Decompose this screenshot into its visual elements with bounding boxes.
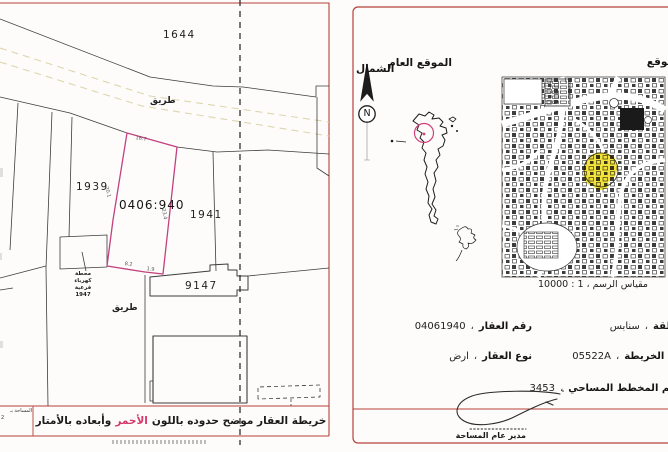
parcel-label-1644: 1644 [163, 29, 196, 41]
parcel-label-9147: 9147 [185, 280, 218, 292]
field-property-type: نوع العقار،ارض [449, 351, 532, 362]
site-map-label: الموقع [647, 56, 668, 68]
field-property-number: رقم العقار،04061940 [415, 321, 532, 332]
scan-smudge-text [112, 440, 208, 444]
caption-highlight-word: الأحمر [115, 415, 148, 427]
field-label: رقم المخطط المساحي [568, 383, 668, 394]
field-value: 04061940 [415, 321, 466, 332]
field-separator: ، [560, 383, 563, 394]
map-caption: خريطة العقار موضح حدوده باللون الأحمر وأ… [33, 406, 329, 436]
field-value: ارض [449, 351, 469, 362]
caption-pre: خريطة العقار موضح حدوده باللون [152, 415, 326, 427]
field-label: رقم الخريطة [624, 351, 668, 362]
field-separator: ، [471, 321, 474, 332]
field-separator: ، [645, 321, 648, 332]
subject-plot-number: 0406:940 [119, 198, 185, 212]
road-label-top: طريق [150, 96, 176, 106]
scanned-survey-certificate: 1644 طريق 1939 0406:940 1941 9147 طريق م… [0, 0, 668, 452]
street-map [502, 77, 665, 277]
field-label: رقم العقار [479, 321, 532, 332]
area-box: المساحة بـ 2 [1, 408, 32, 434]
field-survey-plan-number: رقم المخطط المساحي،3453 [530, 383, 668, 394]
north-label: الشمال [356, 63, 394, 75]
north-letter: N [361, 108, 373, 119]
scan-marks [0, 168, 3, 348]
area-box-label: المساحة بـ [1, 408, 32, 415]
road-label-bottom: طريق [112, 303, 138, 313]
signature-title: مدير عام المساحة [466, 431, 526, 440]
dimension-bottom-right: 1.9 [146, 266, 155, 273]
field-value: 05522A [572, 351, 611, 362]
field-value: 3453 [530, 383, 555, 394]
field-label: المنطقة [653, 321, 668, 332]
location-circle [415, 124, 434, 143]
field-district: المنطقة،سنابس [610, 321, 668, 332]
field-map-number: رقم الخريطة،05522A [572, 351, 668, 362]
scale-caption: مقياس الرسم ، 1 : 10000 [538, 279, 650, 290]
parcel-label-1941: 1941 [190, 209, 223, 221]
general-location-label: الموقع العام [388, 57, 452, 69]
caption-post: وأبعاده بالأمتار [36, 415, 112, 427]
signature-scribble [457, 390, 564, 429]
field-separator: ، [474, 351, 477, 362]
field-value: سنابس [610, 321, 640, 332]
area-box-value: 2 [1, 415, 32, 422]
field-separator: ، [616, 351, 619, 362]
dimension-bottom-left: 8.2 [124, 261, 133, 268]
field-label: نوع العقار [482, 351, 532, 362]
substation-label: محطة كهرباء فرعية 1947 [70, 271, 96, 299]
